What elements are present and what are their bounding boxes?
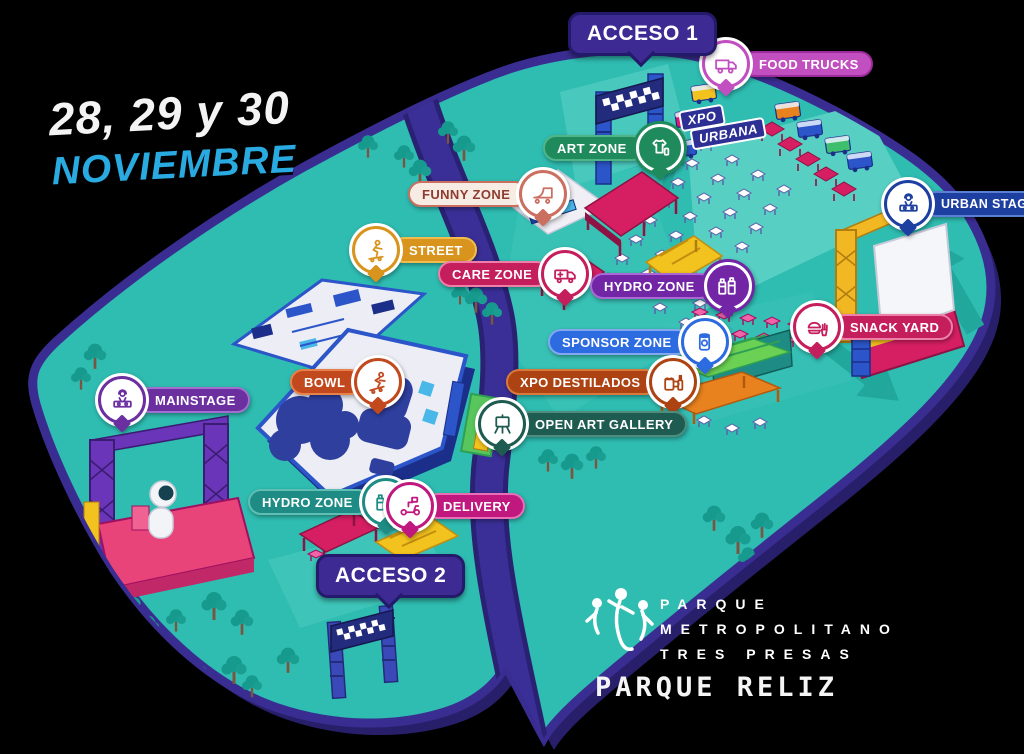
park-name-line1: PARQUE — [660, 592, 899, 617]
dj-icon — [98, 376, 146, 424]
skater-icon — [352, 226, 400, 274]
park-name-line3: TRES PRESAS — [660, 642, 899, 667]
pin-label: MAINSTAGE — [137, 387, 250, 413]
pin-label: CARE ZONE — [438, 261, 550, 287]
pin-art-zone: ART ZONE — [543, 124, 684, 172]
date-days: 28, 29 y 30 — [47, 80, 295, 147]
dj-icon — [884, 180, 932, 228]
park-name-line2: METROPOLITANO — [660, 617, 899, 642]
pin-delivery: DELIVERY — [386, 482, 525, 530]
pin-mainstage: MAINSTAGE — [98, 376, 250, 424]
event-dates: 28, 29 y 30 NOVIEMBRE — [47, 80, 297, 195]
pin-food-trucks: FOOD TRUCKS — [702, 40, 873, 88]
pin-label: HYDRO ZONE — [248, 489, 371, 515]
ambulance-icon — [541, 250, 589, 298]
water-jugs-icon — [704, 262, 752, 310]
acceso-2-bubble: ACCESO 2 — [316, 554, 465, 598]
easel-icon — [478, 400, 526, 448]
pin-snack-yard: SNACK YARD — [793, 303, 953, 351]
pin-label: XPO DESTILADOS — [506, 369, 658, 395]
tshirt-icon — [636, 124, 684, 172]
pin-funny-zone: FUNNY ZONE — [408, 170, 567, 218]
pin-label: HYDRO ZONE — [590, 273, 713, 299]
pin-open-art-gallery: OPEN ART GALLERY — [478, 400, 687, 448]
festival-map-canvas: 28, 29 y 30 NOVIEMBRE ACCESO 1 ACCESO 2 … — [0, 0, 1024, 754]
pin-urban-stage: URBAN STAGE — [884, 180, 1024, 228]
pin-label: BOWL — [290, 369, 363, 395]
acceso-1-bubble: ACCESO 1 — [568, 12, 717, 56]
pin-hydro-zone-top: HYDRO ZONE — [590, 262, 752, 310]
park-name: PARQUE METROPOLITANO TRES PRESAS — [660, 592, 899, 667]
pin-label: ART ZONE — [543, 135, 645, 161]
pin-label: SNACK YARD — [832, 314, 953, 340]
pin-bowl: BOWL — [290, 358, 402, 406]
delivery-scooter-icon — [386, 482, 434, 530]
burger-fries-icon — [793, 303, 841, 351]
beer-mug-icon — [649, 358, 697, 406]
pin-label: URBAN STAGE — [923, 191, 1024, 217]
pin-label: OPEN ART GALLERY — [517, 411, 687, 437]
pin-label: FUNNY ZONE — [408, 181, 528, 207]
mini-ramp-icon — [519, 170, 567, 218]
pin-label: SPONSOR ZONE — [548, 329, 690, 355]
acceso-1-label: ACCESO 1 — [587, 22, 698, 45]
pin-xpo-destilados: XPO DESTILADOS — [506, 358, 697, 406]
pin-care-zone: CARE ZONE — [438, 250, 589, 298]
pin-label: DELIVERY — [425, 493, 525, 519]
tres-presas-logo-mark — [583, 583, 655, 667]
venue-name: PARQUE RELIZ — [595, 672, 838, 703]
pin-label: FOOD TRUCKS — [741, 51, 873, 77]
acceso-2-label: ACCESO 2 — [335, 564, 446, 587]
bowl-skater-icon — [354, 358, 402, 406]
